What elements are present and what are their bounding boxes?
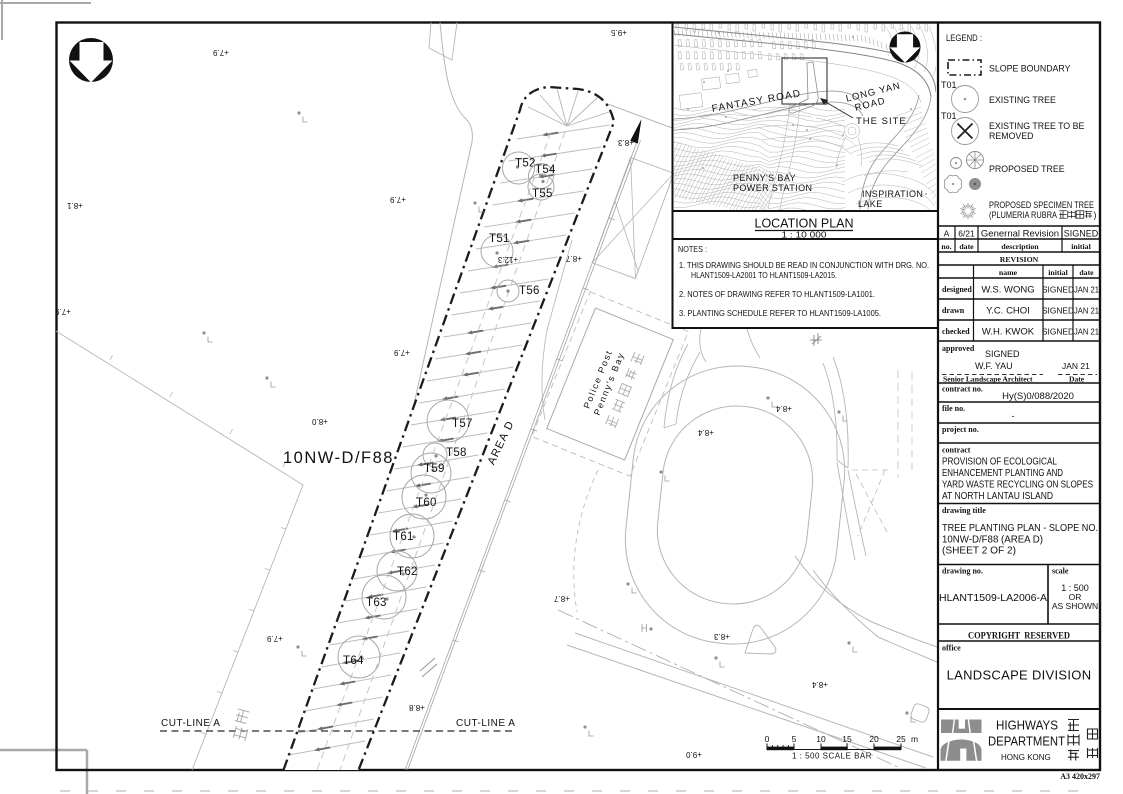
svg-text:5: 5 [792,734,797,744]
svg-text:+7.9: +7.9 [390,195,406,204]
svg-text:contract: contract [942,446,971,455]
svg-text:HONG KONG: HONG KONG [1001,753,1051,762]
svg-text:3. PLANTING SCHEDULE REFER TO: 3. PLANTING SCHEDULE REFER TO HLANT1509-… [679,309,881,318]
svg-text:SIGNED: SIGNED [1042,327,1074,337]
svg-text:20: 20 [869,734,879,744]
svg-text:COPYRIGHT RESERVED: COPYRIGHT RESERVED [968,631,1070,641]
svg-text:HLANT1509-LA2001 TO HLANT1509-: HLANT1509-LA2001 TO HLANT1509-LA2015. [691,271,837,280]
svg-text:JAN 21: JAN 21 [1062,361,1090,371]
svg-text:W.F. YAU: W.F. YAU [975,361,1013,371]
svg-text:+9.0: +9.0 [686,750,702,759]
svg-text:CUT-LINE A: CUT-LINE A [456,718,515,729]
svg-text:+8.4: +8.4 [812,680,828,689]
svg-text:+8.3: +8.3 [714,632,730,641]
svg-text:PROVISION OF ECOLOGICAL: PROVISION OF ECOLOGICAL [942,457,1057,468]
svg-text:SLOPE BOUNDARY: SLOPE BOUNDARY [989,64,1071,74]
svg-text:REVISION: REVISION [1000,255,1039,264]
svg-text:T64: T64 [343,655,364,667]
svg-text:PENNY'S BAY: PENNY'S BAY [733,173,796,183]
svg-text:6/21: 6/21 [958,229,975,239]
svg-text:T51: T51 [489,233,510,245]
svg-text:T62: T62 [397,566,418,578]
svg-text:checked: checked [942,327,970,336]
svg-text:SIGNED: SIGNED [1042,285,1074,295]
svg-text:SIGNED: SIGNED [1064,229,1099,239]
svg-text:Genernal Revision: Genernal Revision [981,229,1059,240]
svg-text:10: 10 [816,734,826,744]
svg-text:drawing no.: drawing no. [942,567,983,576]
svg-text:-: - [1012,411,1015,421]
svg-text:1. THIS DRAWING SHOULD BE READ: 1. THIS DRAWING SHOULD BE READ IN CONJUN… [679,261,929,270]
svg-text:+8.1: +8.1 [67,201,83,210]
svg-text:HIGHWAYS: HIGHWAYS [996,718,1058,733]
svg-text:10NW-D/F88 (AREA D): 10NW-D/F88 (AREA D) [942,535,1043,546]
svg-text:+7.9: +7.9 [267,634,283,643]
svg-text:LANDSCAPE DIVISION: LANDSCAPE DIVISION [947,668,1092,683]
svg-text:name: name [999,268,1018,277]
svg-text:REMOVED: REMOVED [989,131,1033,141]
svg-text:HLANT1509-LA2006-A: HLANT1509-LA2006-A [939,592,1047,604]
svg-text:drawing title: drawing title [942,506,986,515]
svg-text:CUT-LINE A: CUT-LINE A [161,718,220,729]
svg-text:LEGEND :: LEGEND : [946,33,982,44]
svg-text:JAN 21: JAN 21 [1074,307,1100,316]
svg-text:+8.7: +8.7 [566,254,582,263]
svg-text:project no.: project no. [942,425,979,434]
svg-text:designed: designed [942,285,972,294]
svg-text:no.: no. [941,242,951,251]
svg-text:initial: initial [1071,242,1091,251]
svg-text:Hy(S)0/088/2020: Hy(S)0/088/2020 [1002,391,1074,402]
svg-text:date: date [1079,268,1094,277]
svg-text:approved: approved [942,344,975,353]
svg-text:YARD WASTE RECYCLING ON SLOPES: YARD WASTE RECYCLING ON SLOPES [942,480,1093,491]
svg-text:description: description [1001,242,1039,251]
svg-text:initial: initial [1048,268,1068,277]
svg-text:10NW-D/F88: 10NW-D/F88 [283,449,394,467]
svg-text:POWER STATION: POWER STATION [733,183,812,193]
svg-text:date: date [959,242,974,251]
svg-text:(PLUMERIA RUBRA: (PLUMERIA RUBRA [989,210,1057,220]
svg-text:drawn: drawn [942,306,965,315]
svg-text:+12.3: +12.3 [497,255,518,264]
svg-text:25: 25 [896,734,906,744]
svg-text:PROPOSED TREE: PROPOSED TREE [989,164,1065,174]
svg-text:Senior Landscape Architect: Senior Landscape Architect [943,375,1033,384]
svg-text:0: 0 [765,734,770,744]
svg-text:EXISTING TREE TO BE: EXISTING TREE TO BE [989,121,1084,131]
svg-text:T57: T57 [452,418,473,430]
svg-text:JAN 21: JAN 21 [1074,328,1100,337]
svg-text:DEPARTMENT: DEPARTMENT [988,734,1065,749]
svg-text:scale: scale [1052,567,1069,576]
svg-text:(SHEET 2 OF 2): (SHEET 2 OF 2) [942,546,1016,557]
svg-text:T58: T58 [446,447,467,459]
svg-text:Y.C. CHOI: Y.C. CHOI [986,306,1030,317]
svg-text:+7.9: +7.9 [55,307,71,316]
svg-text:EXISTING TREE: EXISTING TREE [989,95,1056,105]
svg-text:m: m [911,734,918,744]
svg-text:A3 420x297: A3 420x297 [1060,772,1100,781]
svg-text:LOCATION PLAN: LOCATION PLAN [755,216,854,231]
svg-text:+9.5: +9.5 [611,28,627,37]
svg-text:W.H. KWOK: W.H. KWOK [982,327,1035,338]
svg-text:office: office [942,644,961,653]
svg-text:T56: T56 [519,285,540,297]
svg-text:SIGNED: SIGNED [1042,306,1074,316]
svg-text:1 : 500 SCALE BAR: 1 : 500 SCALE BAR [792,752,872,761]
svg-text:+8.4: +8.4 [698,428,714,437]
svg-text:+8.0: +8.0 [312,417,328,426]
svg-text:T59: T59 [424,463,445,475]
svg-text:+7.9: +7.9 [394,348,410,357]
svg-text:+8.8: +8.8 [409,703,425,712]
svg-text:TREE PLANTING PLAN - SLOPE NO.: TREE PLANTING PLAN - SLOPE NO. [942,523,1098,534]
svg-text:INSPIRATION: INSPIRATION [862,189,923,199]
svg-text:+8.4: +8.4 [776,404,792,413]
svg-text:T60: T60 [416,497,437,509]
svg-text:T52: T52 [515,158,536,170]
svg-text:2. NOTES OF DRAWING REFER TO H: 2. NOTES OF DRAWING REFER TO HLANT1509-L… [679,290,875,299]
svg-text:SIGNED: SIGNED [985,349,1020,359]
svg-text:contract no.: contract no. [942,385,983,394]
svg-text:): ) [1094,210,1097,220]
svg-text:Date: Date [1069,375,1085,384]
svg-text:A: A [944,229,950,239]
svg-text:T61: T61 [393,531,414,543]
svg-text:T01: T01 [941,111,957,121]
svg-text:W.S. WONG: W.S. WONG [981,285,1034,296]
svg-text:+8.7: +8.7 [554,594,570,603]
svg-text:AT NORTH LANTAU ISLAND: AT NORTH LANTAU ISLAND [942,491,1053,502]
svg-text:T55: T55 [532,188,553,200]
svg-text:+8.3: +8.3 [618,138,634,147]
svg-text:PROPOSED SPECIMEN TREE: PROPOSED SPECIMEN TREE [989,200,1094,210]
svg-text:T63: T63 [366,597,387,609]
svg-text:NOTES :: NOTES : [678,244,707,254]
svg-text:AS SHOWN: AS SHOWN [1052,601,1098,611]
svg-text:15: 15 [842,734,852,744]
svg-text:T01: T01 [941,80,957,90]
svg-text:file no.: file no. [942,404,965,413]
svg-text:ENHANCEMENT PLANTING AND: ENHANCEMENT PLANTING AND [942,468,1063,479]
svg-text:THE SITE: THE SITE [856,116,907,127]
svg-text:+7.9: +7.9 [213,48,229,57]
svg-text:JAN 21: JAN 21 [1074,286,1100,295]
svg-text:LAKE: LAKE [858,199,883,209]
